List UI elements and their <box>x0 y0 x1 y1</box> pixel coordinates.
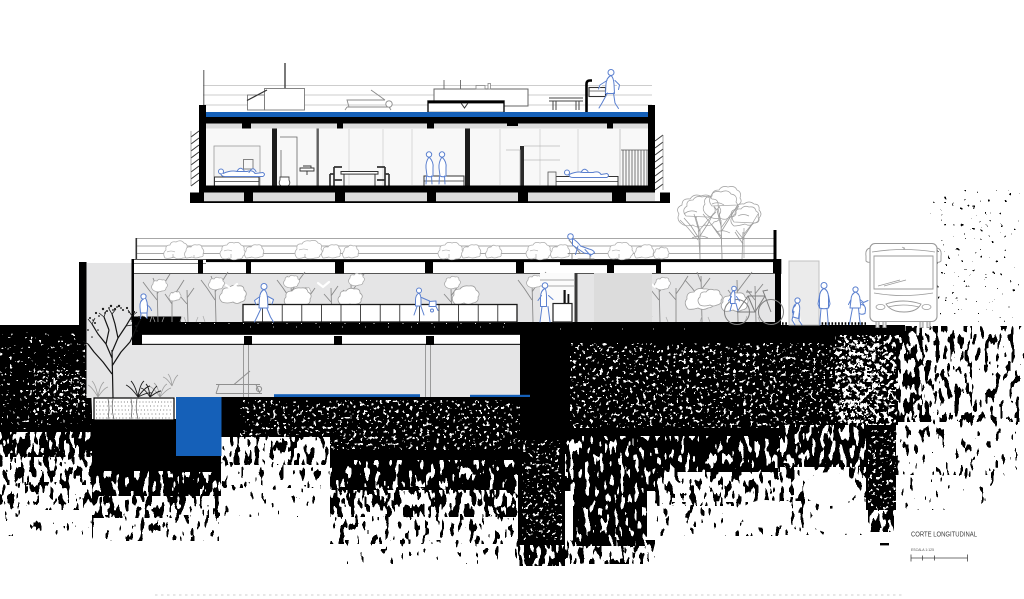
svg-text:CORTE LONGITUDINAL: CORTE LONGITUDINAL <box>911 532 977 539</box>
svg-text:ESCALA 1:125: ESCALA 1:125 <box>911 547 935 552</box>
